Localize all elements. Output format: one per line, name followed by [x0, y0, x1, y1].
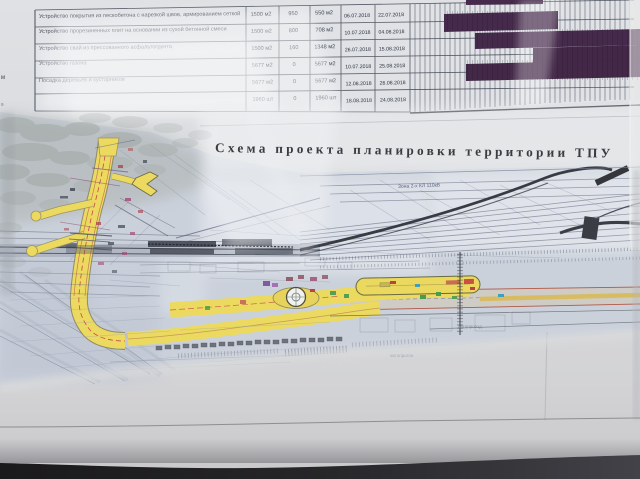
svg-text:25.08.2018: 25.08.2018 [379, 63, 405, 70]
svg-text:22.07.2018: 22.07.2018 [378, 12, 404, 19]
svg-text:24.08.2018: 24.08.2018 [380, 97, 406, 104]
svg-text:10.07.2018: 10.07.2018 [345, 64, 371, 71]
svg-text:06.07.2018: 06.07.2018 [344, 13, 370, 20]
svg-text:550 м2: 550 м2 [315, 10, 333, 16]
svg-text:10.07.2018: 10.07.2018 [344, 30, 370, 37]
svg-text:18.08.2018: 18.08.2018 [346, 98, 372, 105]
svg-text:15.08.2018: 15.08.2018 [379, 46, 405, 53]
svg-text:автопроезд: автопроезд [458, 324, 482, 329]
svg-text:м: м [1, 75, 5, 81]
svg-text:708 м2: 708 м2 [315, 27, 333, 33]
svg-text:26.08.2018: 26.08.2018 [380, 80, 406, 87]
svg-text:26.07.2018: 26.07.2018 [345, 47, 371, 54]
svg-text:12.08.2018: 12.08.2018 [346, 81, 372, 88]
svg-text:04.08.2018: 04.08.2018 [378, 29, 404, 36]
